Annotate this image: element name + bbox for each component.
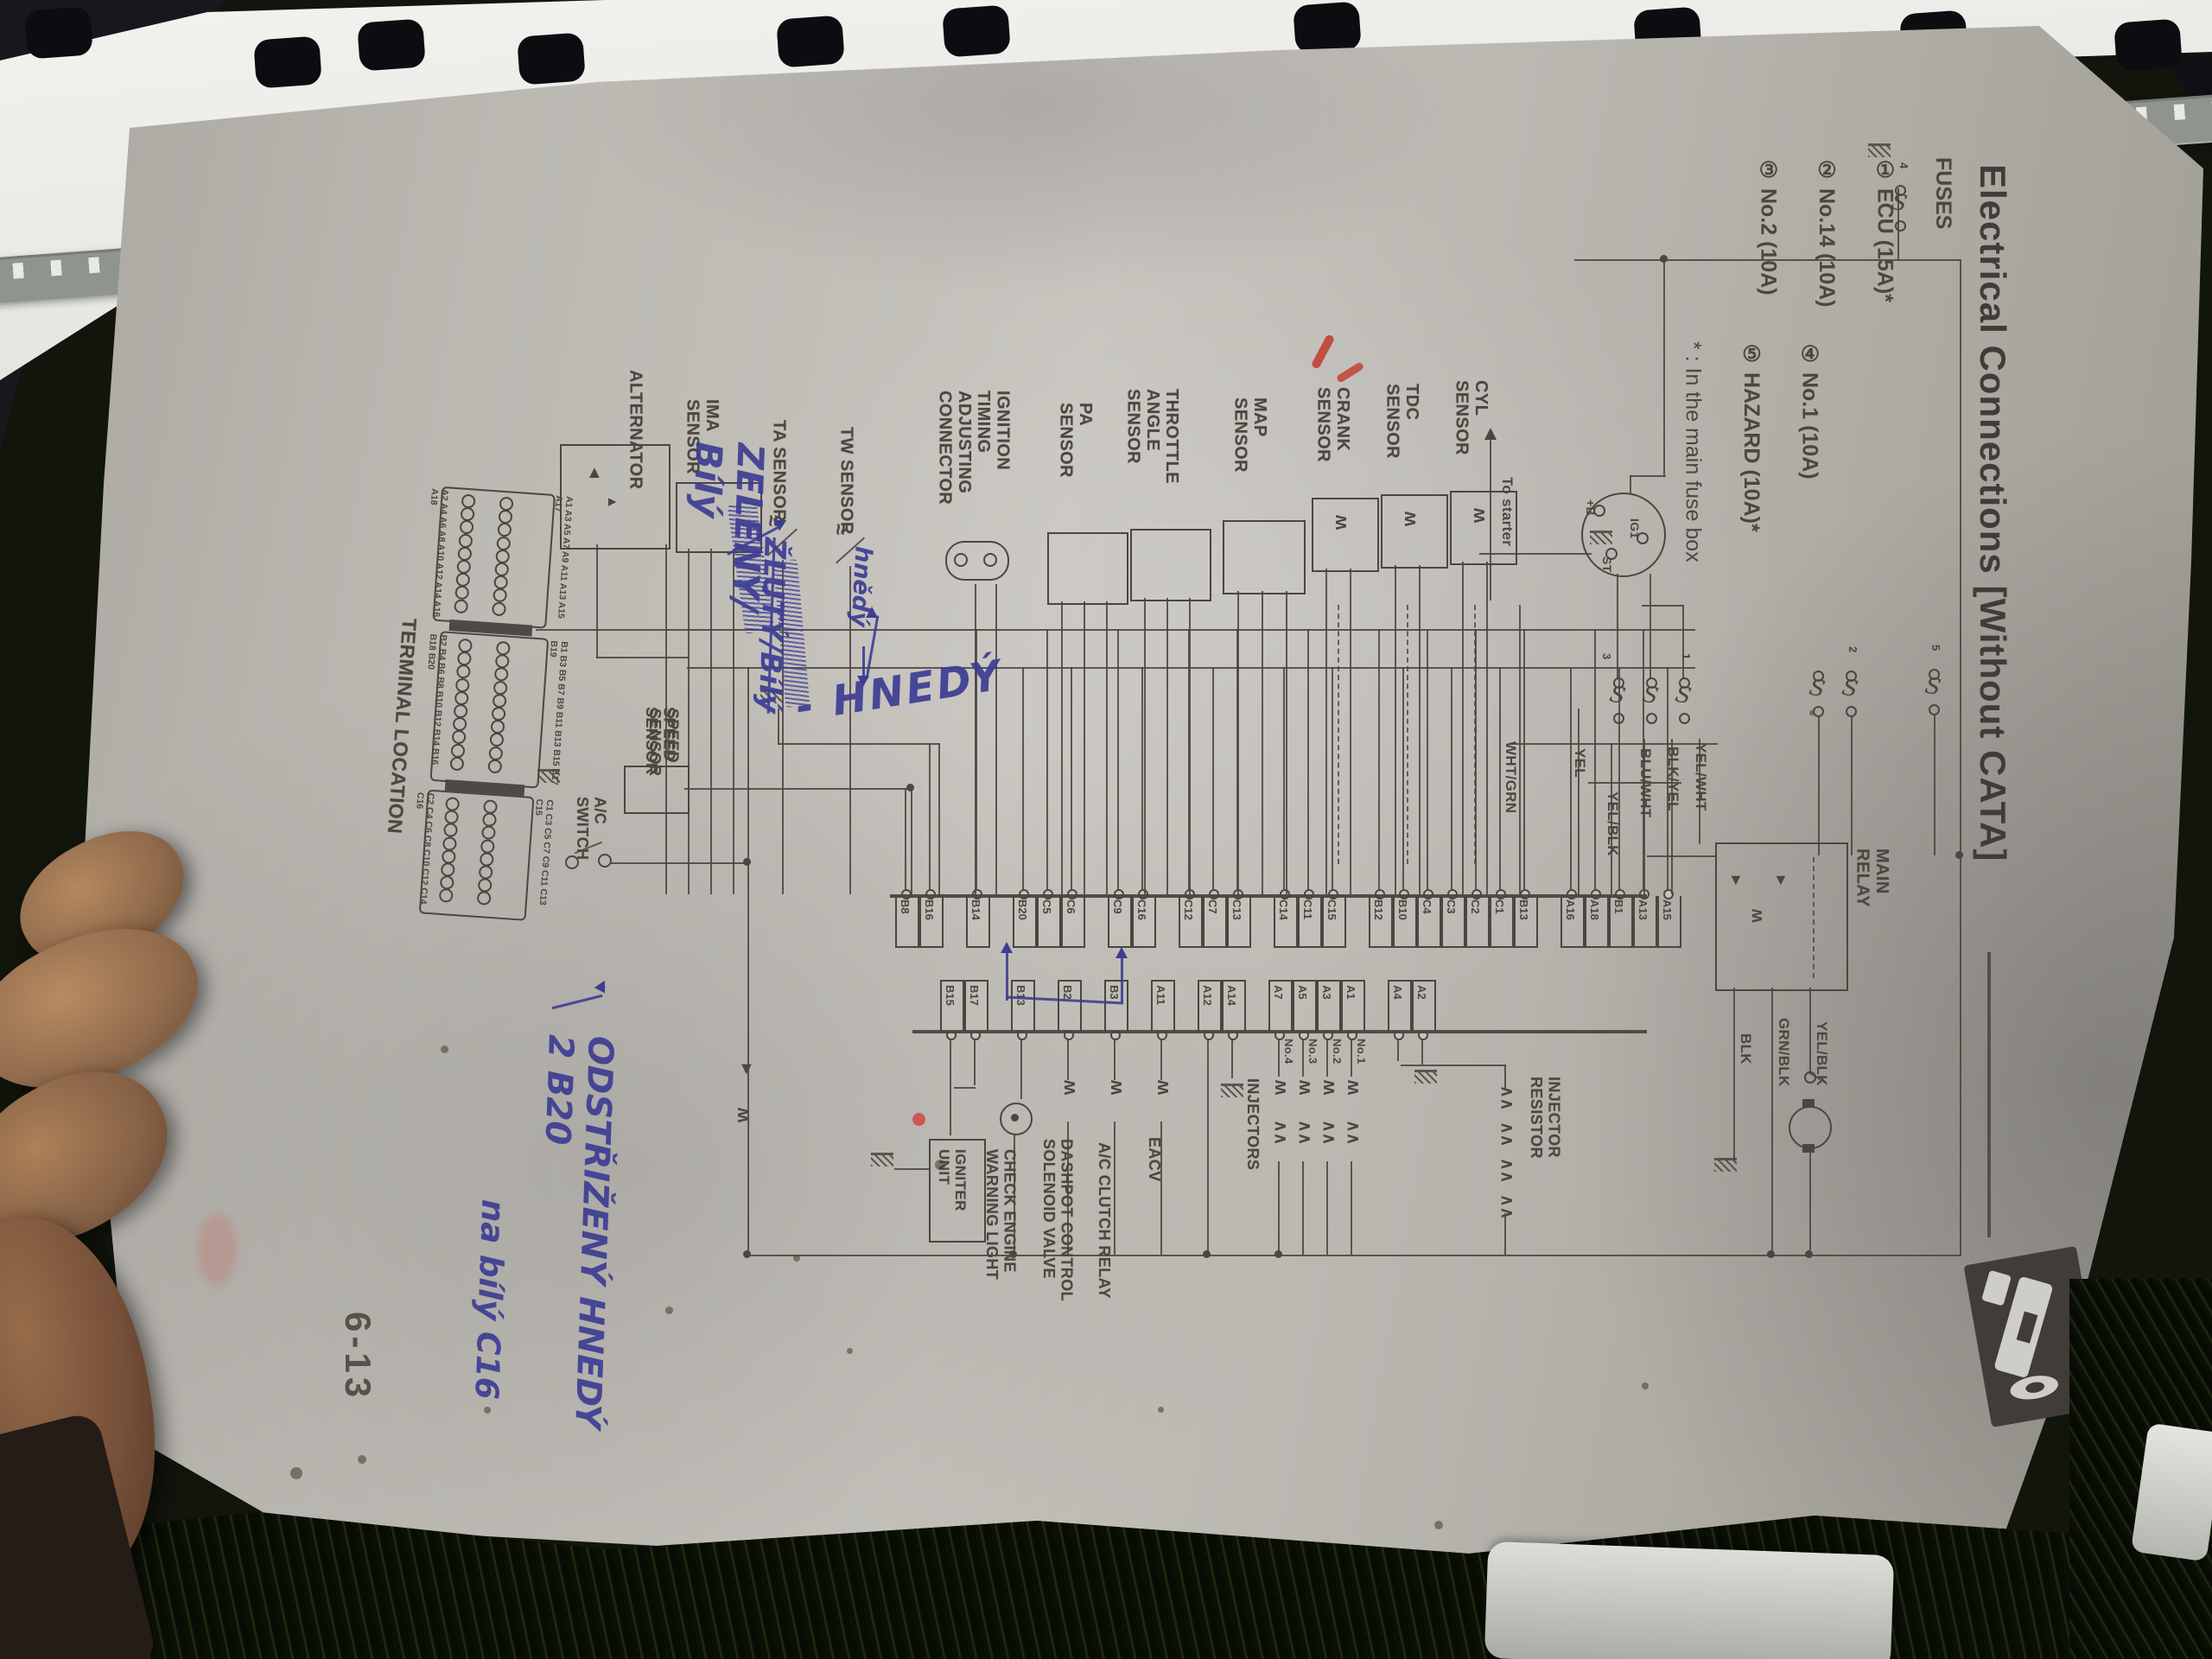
- hw-arrow-line: [552, 995, 603, 1009]
- hw-arrowhead: [1001, 942, 1013, 953]
- hw-hnedy-big: - HNEDÝ: [792, 651, 1006, 731]
- hw-odstrizeny: ODSTŘIŽENÝ HNEDÝ 2 B20: [527, 1034, 620, 1434]
- hw-b20-c16-bracket-right: [1121, 957, 1123, 1002]
- dirt-speck: [290, 1467, 302, 1479]
- photo-of-wiring-diagram-page: Electrical Connections [Without CATA] FU…: [0, 0, 2212, 1659]
- hw-na-bily: na bílý C16: [467, 1198, 512, 1415]
- hw-arrowhead: [866, 607, 878, 618]
- red-dot: [912, 1113, 925, 1126]
- dirt-speck: [847, 1348, 853, 1354]
- dirt-speck: [358, 1455, 366, 1464]
- handwritten-annotations: ZELENÝ/ Bílý ŽLUTÝ/Bílý hnědý - HNEDÝ OD…: [0, 0, 2212, 1659]
- hw-b20-c16-bracket-left: [1006, 952, 1008, 1001]
- dirt-speck: [1434, 1521, 1443, 1529]
- hw-zluty-bily: ŽLUTÝ/Bílý: [749, 537, 791, 771]
- dirt-speck: [935, 1160, 945, 1170]
- dirt-speck: [441, 1046, 448, 1053]
- dirt-speck: [665, 1306, 673, 1314]
- dirt-speck: [793, 1255, 800, 1262]
- pink-smudge: [197, 1213, 237, 1286]
- hw-b20-c16-bracket-bottom: [1006, 995, 1123, 1004]
- dirt-speck: [484, 1407, 491, 1414]
- hw-arrowhead: [594, 977, 610, 993]
- dirt-speck: [1158, 1407, 1164, 1413]
- white-chair-fragment: [1484, 1541, 1894, 1659]
- hw-arrowhead: [1116, 947, 1128, 958]
- dirt-speck: [1809, 710, 1815, 715]
- dirt-speck: [1642, 1382, 1649, 1389]
